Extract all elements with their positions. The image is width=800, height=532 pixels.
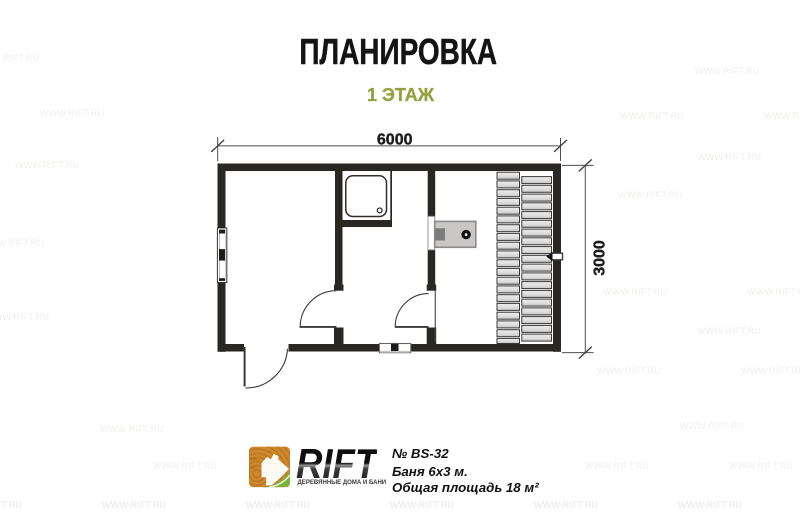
svg-text:6000: 6000 xyxy=(377,131,413,148)
svg-text:3000: 3000 xyxy=(591,240,608,276)
